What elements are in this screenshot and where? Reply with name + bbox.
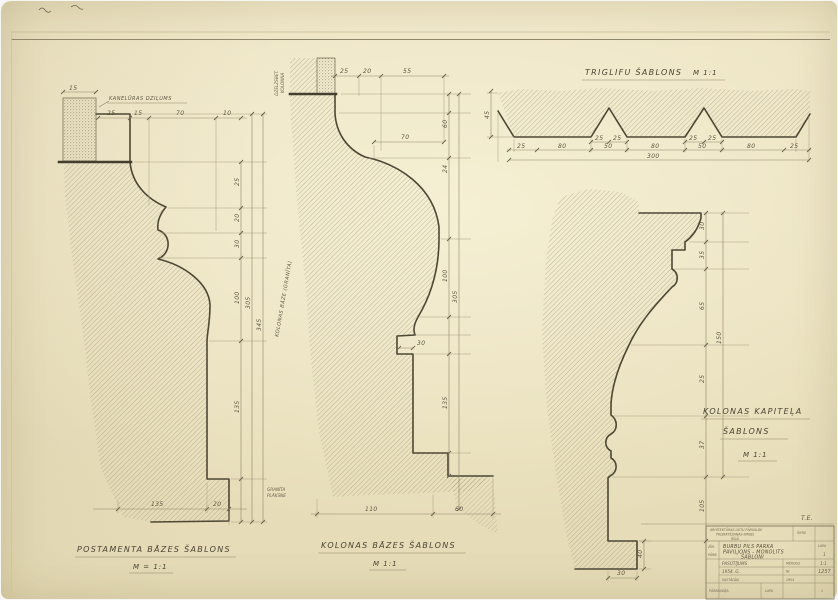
tb-org-2: PROJEKTĒŠANAS BIROJS [716,532,754,537]
kapitelis-dim: 30 [699,222,706,230]
kolona-foot-note-1: GRANĪTA [267,487,286,492]
pencil-mark [39,6,83,13]
triglifs-dim: 50 [604,143,612,150]
kapitelis-dim-bottom: 30 [617,570,625,577]
kolona-drawing: DZELZSBET. KOLONNA KOLONAS BĀZE (GRANĪTA… [267,58,501,570]
tb-sig-2: PĀRBAUDĪJA [709,588,729,593]
tb-project-3: ŠABLONI [741,554,764,561]
kapitelis-dim: 65 [699,302,706,310]
postament-flute-block [63,98,96,161]
kolona-dim: 100 [442,269,449,282]
tb-org-1: ARHITEKTŪRAS LIETU PĀRVALDE [709,527,762,532]
triglifs-dim: 50 [698,143,706,150]
kolona-dim: 55 [403,68,411,75]
triglifs-dim: 80 [747,143,755,150]
postament-total: 305 [245,296,252,309]
tb-scale-label: MĒROGS [786,561,800,566]
kapitelis-dim: 25 [699,375,706,383]
triglifs-dim-total: 300 [647,153,660,160]
kapitelis-hatch-mass [542,189,701,569]
screenshot-stage: KANELŪRAS DZIĻUMS 15 25 15 70 10 25 20 3… [0,0,838,600]
triglifs-dim: 80 [651,143,659,150]
postament-dim: 135 [234,400,241,413]
kolona-dim-width: 70 [401,134,409,141]
triglifs-dim: 25 [613,135,621,142]
kolona-title: KOLONAS BĀZES ŠABLONS [321,539,456,550]
triglifs-scale: M 1:1 [693,69,718,77]
kapitelis-scale: M 1:1 [743,451,768,459]
postament-scale: M = 1:1 [133,563,168,571]
postament-dim: 25 [234,178,241,186]
tb-sheets-no: 1 [821,589,823,593]
tb-sheets-label: LAPA [765,589,773,593]
tb-row-year: 1954. G. [722,569,740,574]
kolona-scale: M 1:1 [373,560,398,568]
triglifs-drawing: 45 25 25 25 25 25 80 50 80 50 80 25 300 … [484,66,811,162]
sheet-svg: KANELŪRAS DZIĻUMS 15 25 15 70 10 25 20 3… [1,1,838,600]
tb-row-order: PASŪTĪJUMS [722,561,748,566]
kolona-top-note-1: DZELZSBET. [274,70,279,96]
kapitelis-dim: 105 [699,499,706,512]
kapitelis-title-2: ŠABLONS [723,425,770,436]
postament-dim: 25 [107,110,115,117]
tb-project-1: BURBU PILS PARKA [723,544,774,550]
kapitelis-dim: 35 [699,251,706,259]
sheet-corner-note: T.E. [801,515,813,522]
tb-sheet-label: LAPA [818,544,826,548]
title-block: T.E. ARHITEKTŪRAS LIETU PĀRVALDE PROJEKT… [641,515,834,599]
tb-row-scale: 1:1 [820,561,827,566]
tb-row-number: 1257 [818,569,832,575]
kolona-total: 305 [452,290,459,303]
postament-dim-flute: 15 [69,85,77,92]
tb-sheet-no: 1 [823,552,826,557]
kapitelis-dim-foot: 40 [637,550,644,558]
postament-dim: 30 [234,240,241,248]
postament-dim: 70 [176,110,184,117]
triglifs-dim: 25 [708,135,716,142]
postament-total: 345 [256,318,263,331]
tb-code: ŠIFRS [797,530,806,535]
kapitelis-dim: 37 [699,441,706,449]
triglifs-dim: 25 [689,135,697,142]
kolona-side-note: KOLONAS BĀZE (GRANĪTA) [273,260,293,338]
tb-sig-date: 1954 [786,578,794,582]
postament-hatch-mass [64,162,229,522]
drawing-sheet: KANELŪRAS DZIĻUMS 15 25 15 70 10 25 20 3… [1,1,837,599]
kolona-dim-notch: 30 [417,340,425,347]
triglifs-dim: 80 [558,143,566,150]
postament-dim: 15 [134,110,142,117]
triglifs-dim: 25 [790,143,798,150]
postament-title: POSTAMENTA BĀZES ŠABLONS [77,543,231,554]
kolona-dim: 25 [340,68,348,75]
triglifs-dim: 25 [595,135,603,142]
kolona-top-note-2: KOLONNA [280,73,285,94]
postament-dim: 100 [234,291,241,304]
postament-note: KANELŪRAS DZIĻUMS [109,95,172,102]
kolona-dim: 135 [442,396,449,409]
kolona-dim: 24 [442,165,449,173]
postament-dim: 20 [213,501,221,508]
tb-sig-1: SASTĀDĪJA [722,577,739,582]
kolona-hatch-mass [290,58,493,497]
kolona-dim: 110 [365,506,378,513]
kolona-foot-note-2: PLĀKSNE [267,493,286,498]
kapitelis-title-1: KOLONAS KAPITEĻA [703,407,803,416]
triglifs-hatch-mass [498,88,810,137]
tb-org-3: RĪGĀ [731,536,739,541]
postament-dim: 10 [223,110,231,117]
kapitelis-drawing: 30 35 65 25 37 105 150 30 40 KOLONAS KAP… [542,189,810,581]
tb-no-label: Nr. [786,570,790,574]
postament-dim: 135 [151,501,164,508]
triglifs-title: TRIGLIFU ŠABLONS [585,66,682,77]
kapitelis-total: 150 [716,331,723,344]
postament-dim: 20 [234,214,241,222]
kolona-dim: 20 [363,68,371,75]
tb-left-2: PĀRB. [708,552,718,557]
kolona-dim: 60 [442,120,449,128]
kolona-dim: 60 [455,506,463,513]
postament-drawing: KANELŪRAS DZIĻUMS 15 25 15 70 10 25 20 3… [59,85,267,573]
tb-left-1: ZĪM. [707,544,715,549]
triglifs-dim-height: 45 [484,111,491,119]
triglifs-dim: 25 [517,143,525,150]
